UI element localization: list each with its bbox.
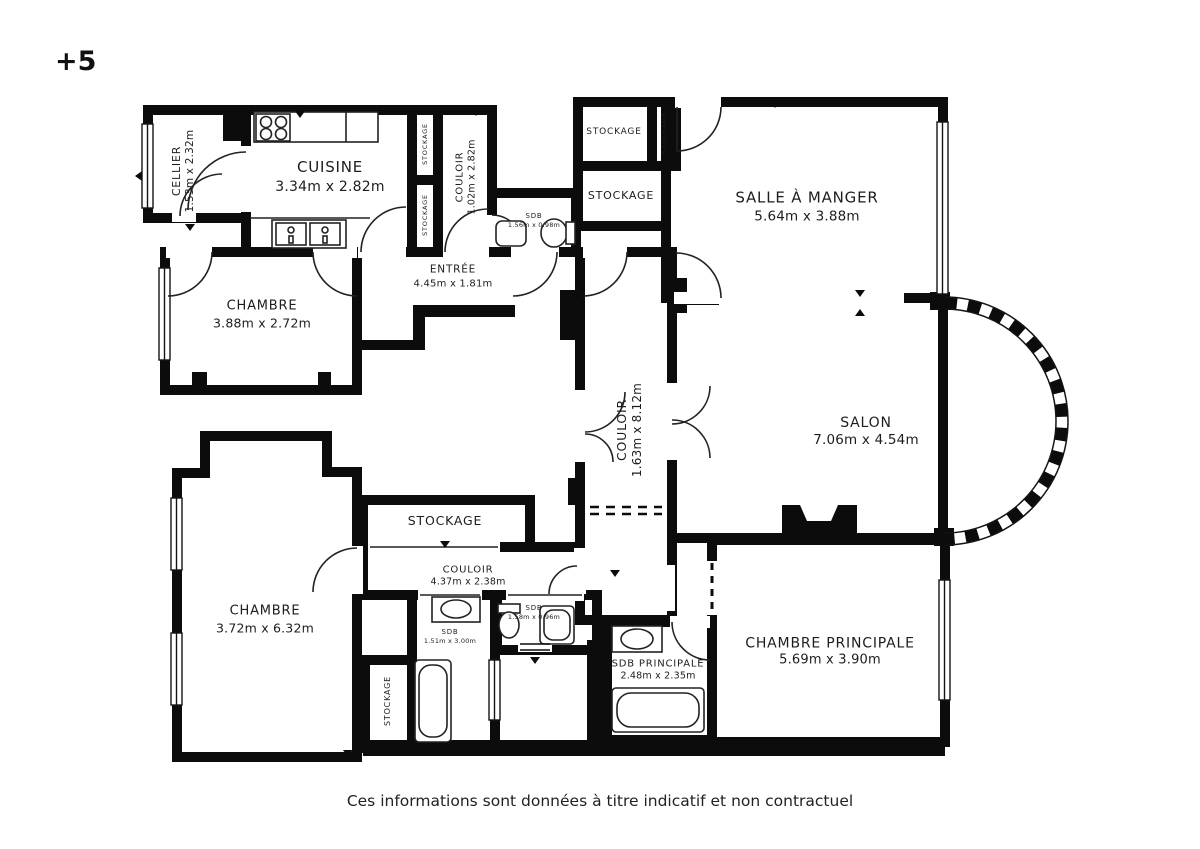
window-chambre-haut — [159, 268, 170, 360]
bathtub-principale-icon — [612, 688, 704, 732]
room-label-salle-a-manger: SALLE À MANGER 5.64m x 3.88m — [735, 188, 878, 225]
room-label-sdb-principale: SDB PRINCIPALE 2.48m x 2.35m — [612, 657, 705, 682]
room-label-stockage-closet-1: STOCKAGE — [421, 123, 429, 165]
room-label-stockage-closet-2: STOCKAGE — [421, 194, 429, 236]
room-label-couloir-bas: COULOIR 4.37m x 2.38m — [430, 563, 505, 588]
bathtub-vertical-icon — [415, 660, 451, 742]
room-label-stockage-vertical: STOCKAGE — [660, 112, 668, 154]
window-chambre-principale — [939, 580, 950, 700]
room-label-couloir-central: COULOIR 1.63m x 8.12m — [614, 383, 646, 477]
window-cellier — [142, 124, 153, 208]
room-label-entree: ENTRÉE 4.45m x 1.81m — [414, 264, 493, 291]
room-label-stockage-2: STOCKAGE — [588, 189, 654, 203]
stove-icon — [256, 114, 290, 141]
room-label-chambre-haut: CHAMBRE 3.88m x 2.72m — [213, 298, 311, 331]
kitchen-sink-icon — [250, 218, 370, 248]
room-label-chambre-bas: CHAMBRE 3.72m x 6.32m — [216, 603, 314, 636]
room-label-chambre-principale: CHAMBRE PRINCIPALE 5.69m x 3.90m — [745, 634, 914, 669]
room-label-salon: SALON 7.06m x 4.54m — [813, 414, 919, 450]
room-label-cuisine: CUISINE 3.34m x 2.82m — [275, 158, 384, 196]
room-label-couloir-haut: COULOIR 1.02m x 2.82m — [453, 139, 478, 214]
washbasin-icon — [432, 597, 480, 622]
floorplan-page: +5 — [0, 0, 1200, 849]
room-label-sdb-petit: SDB 1.58m x 0.96m — [508, 604, 560, 622]
bay-window — [944, 297, 1068, 545]
room-label-stockage-bas: STOCKAGE — [383, 676, 393, 726]
room-label-cellier: CELLIER 1.53m x 2.32m — [170, 130, 198, 213]
window-chambre-bas-1 — [171, 498, 182, 570]
room-label-stockage-1: STOCKAGE — [586, 127, 641, 139]
room-label-sdb-bas: SDB 1.51m x 3.00m — [424, 628, 476, 646]
washbasin-principale-icon — [612, 626, 662, 652]
window-sdb-bas — [489, 660, 500, 720]
disclaimer-text: Ces informations sont données à titre in… — [0, 792, 1200, 810]
room-label-stockage-milieu: STOCKAGE — [408, 513, 482, 529]
window-salle-a-manger — [937, 122, 948, 294]
room-label-sdb-haut: SDB 1.56m x 0.98m — [508, 212, 560, 230]
window-chambre-bas-2 — [171, 633, 182, 705]
